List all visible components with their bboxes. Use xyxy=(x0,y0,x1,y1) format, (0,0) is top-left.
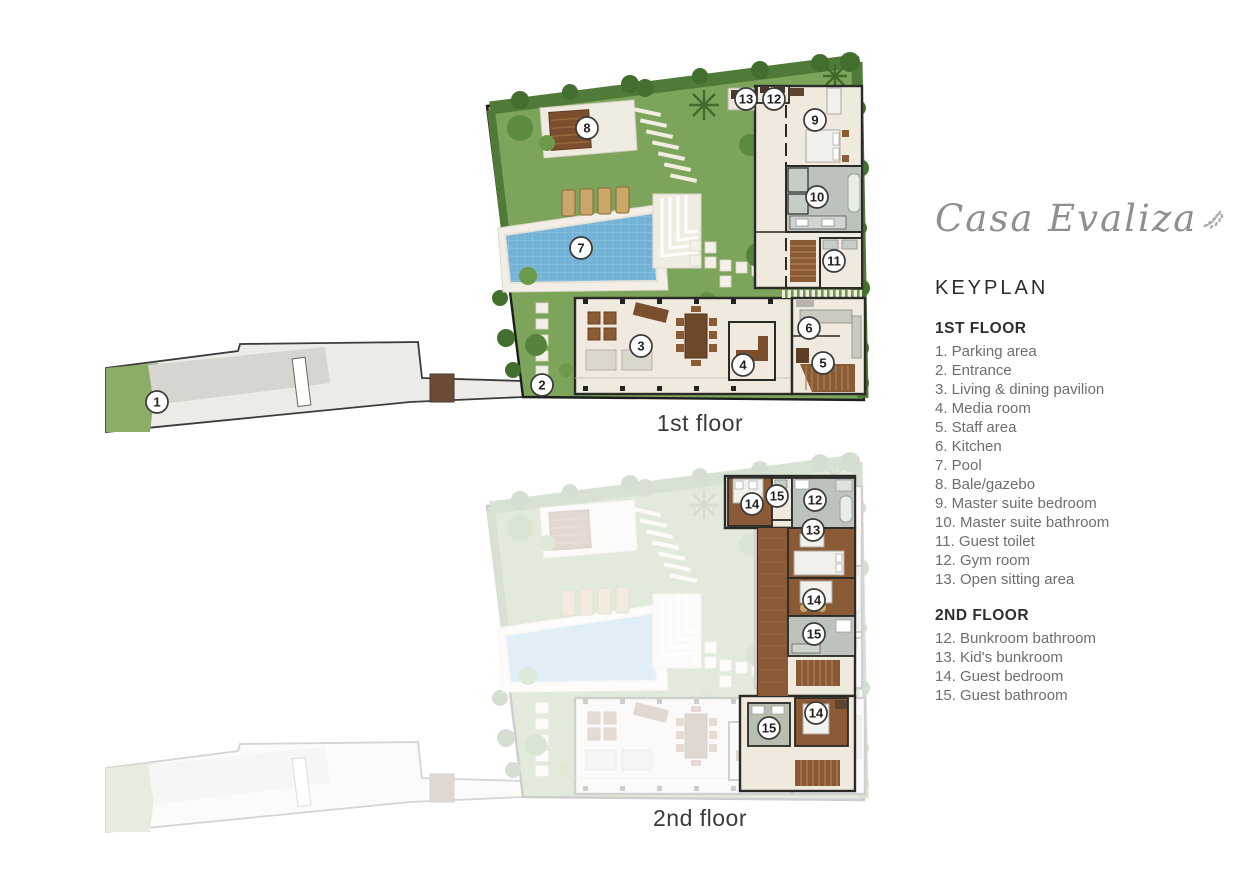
brand-logo: Casa Evaliza xyxy=(935,200,1225,237)
legend-section-first-floor: 1ST FLOOR 1. Parking area2. Entrance3. L… xyxy=(935,320,1225,589)
legend-item: 12. Gym room xyxy=(935,551,1225,570)
room-marker-number: 8 xyxy=(583,121,590,136)
legend-item: 2. Entrance xyxy=(935,361,1225,380)
legend-item: 13. Kid's bunkroom xyxy=(935,648,1225,667)
legend-item: 6. Kitchen xyxy=(935,437,1225,456)
room-marker-number: 2 xyxy=(538,378,545,393)
legend-item: 5. Staff area xyxy=(935,418,1225,437)
legend-item: 14. Guest bedroom xyxy=(935,667,1225,686)
page: 12345678910111213 1415121314151514 1st f… xyxy=(0,0,1250,884)
room-marker-number: 14 xyxy=(745,497,760,512)
room-marker-number: 7 xyxy=(577,241,584,256)
room-marker-number: 1 xyxy=(153,395,160,410)
room-marker-number: 15 xyxy=(807,627,821,642)
legend-list-first-floor: 1. Parking area2. Entrance3. Living & di… xyxy=(935,342,1225,589)
legend-heading-first-floor: 1ST FLOOR xyxy=(935,320,1225,338)
first-floor-label: 1st floor xyxy=(560,410,840,437)
room-marker-number: 3 xyxy=(637,339,644,354)
legend-item: 1. Parking area xyxy=(935,342,1225,361)
room-marker-number: 9 xyxy=(811,113,818,128)
legend-item: 9. Master suite bedroom xyxy=(935,494,1225,513)
room-marker-number: 12 xyxy=(767,92,781,107)
legend-item: 3. Living & dining pavilion xyxy=(935,380,1225,399)
leaf-sprig-icon xyxy=(1201,201,1225,237)
first-floor-plan: 12345678910111213 xyxy=(100,48,870,438)
legend-item: 7. Pool xyxy=(935,456,1225,475)
legend-heading-second-floor: 2ND FLOOR xyxy=(935,607,1225,625)
legend-item: 15. Guest bathroom xyxy=(935,686,1225,705)
room-marker-number: 15 xyxy=(762,721,776,736)
legend-list-second-floor: 12. Bunkroom bathroom13. Kid's bunkroom1… xyxy=(935,629,1225,705)
room-marker-number: 6 xyxy=(805,321,812,336)
room-marker-number: 13 xyxy=(806,523,820,538)
legend-section-second-floor: 2ND FLOOR 12. Bunkroom bathroom13. Kid's… xyxy=(935,607,1225,705)
second-floor-plan: 1415121314151514 xyxy=(100,448,870,838)
legend-item: 12. Bunkroom bathroom xyxy=(935,629,1225,648)
room-marker-number: 4 xyxy=(739,358,747,373)
legend-item: 13. Open sitting area xyxy=(935,570,1225,589)
room-marker-number: 10 xyxy=(810,190,824,205)
room-marker-number: 14 xyxy=(807,593,822,608)
legend-item: 10. Master suite bathroom xyxy=(935,513,1225,532)
room-marker-number: 5 xyxy=(819,356,826,371)
legend-item: 4. Media room xyxy=(935,399,1225,418)
keyplan-title: KEYPLAN xyxy=(935,277,1225,300)
room-marker-number: 14 xyxy=(809,706,824,721)
keyplan-panel: Casa Evaliza KEYPLAN 1ST FLOOR xyxy=(935,200,1225,723)
legend-item: 8. Bale/gazebo xyxy=(935,475,1225,494)
legend-item: 11. Guest toilet xyxy=(935,532,1225,551)
room-marker-number: 15 xyxy=(770,489,784,504)
room-marker-number: 12 xyxy=(808,493,822,508)
logo-text: Casa Evaliza xyxy=(935,200,1197,237)
second-floor-label: 2nd floor xyxy=(560,805,840,832)
room-marker-number: 13 xyxy=(739,92,753,107)
room-marker-number: 11 xyxy=(827,254,841,269)
